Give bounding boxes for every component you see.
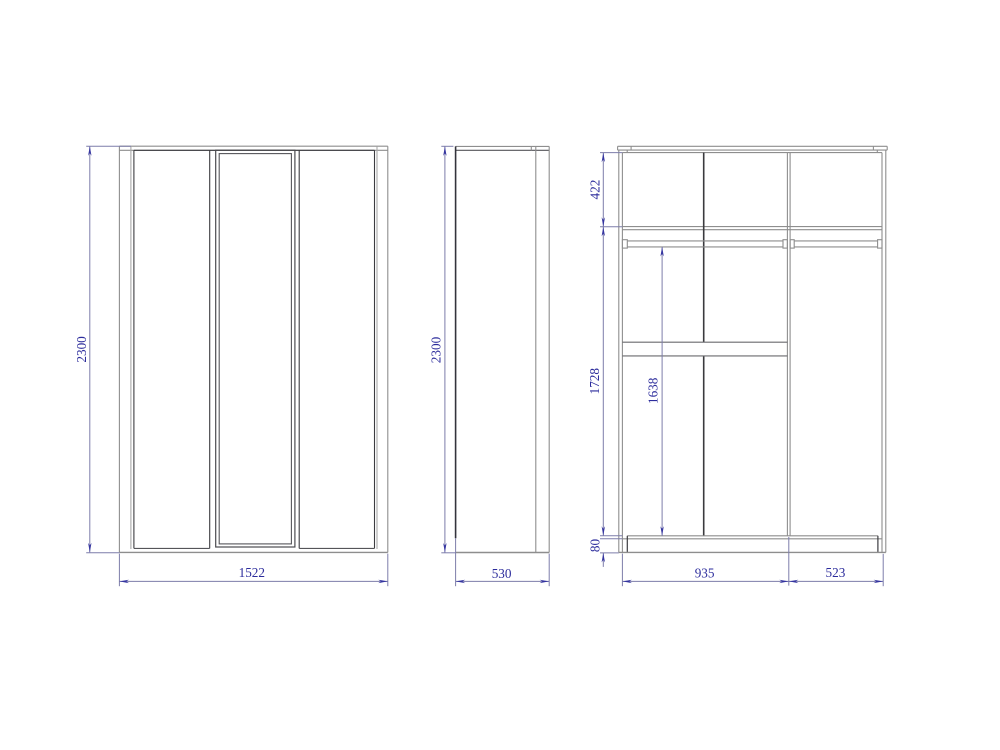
svg-text:80: 80: [587, 539, 602, 553]
svg-text:1728: 1728: [587, 368, 602, 395]
svg-text:422: 422: [587, 180, 602, 200]
svg-text:2300: 2300: [429, 336, 444, 363]
svg-text:1522: 1522: [239, 565, 265, 580]
svg-text:2300: 2300: [74, 336, 89, 363]
svg-text:523: 523: [826, 565, 846, 580]
svg-text:530: 530: [492, 566, 512, 581]
svg-text:935: 935: [695, 566, 715, 581]
svg-text:1638: 1638: [646, 377, 661, 404]
